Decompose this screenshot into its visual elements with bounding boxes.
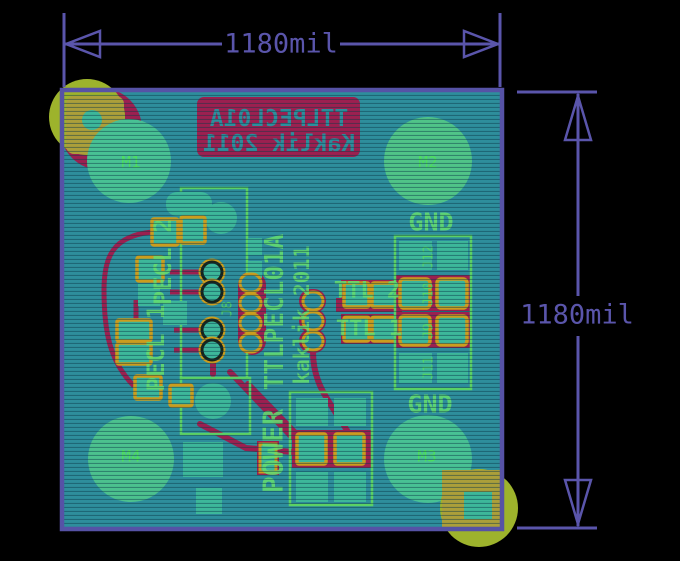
dimension-height-label: 1180mil xyxy=(520,300,634,331)
dimension-width-label: 1180mil xyxy=(224,29,338,60)
board-hatch-overlay xyxy=(62,90,502,529)
board: TTLPECL01A Kaklik 2011 xyxy=(49,79,518,547)
pcb-viewer-canvas: TTLPECL01A Kaklik 2011 xyxy=(0,0,680,561)
pcb-render: TTLPECL01A Kaklik 2011 xyxy=(0,0,680,561)
